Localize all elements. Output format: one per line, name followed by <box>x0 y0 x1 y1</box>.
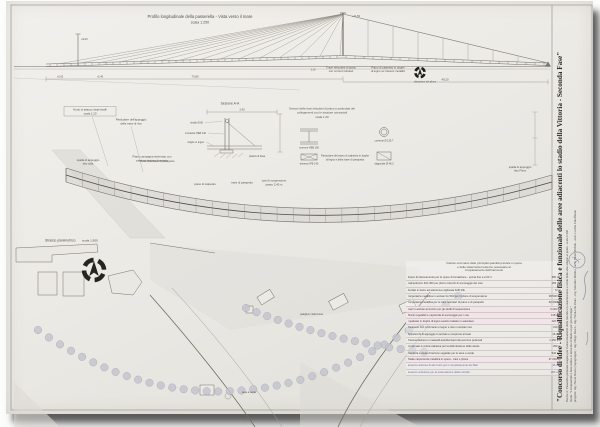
tree-icon <box>101 364 109 372</box>
symbol-caption: ubicazione del pilone <box>414 81 437 84</box>
tree-icon <box>253 308 261 316</box>
det-b-caption: corrente Ø 139,7 <box>375 140 394 143</box>
tree-icon <box>157 382 165 390</box>
det-b2-caption: diagonale Ø 48,3 <box>374 163 394 166</box>
row-description: Fornitura e stesa di terreno vegetale pe… <box>408 351 474 356</box>
dim-span-right: 49,20 <box>442 77 449 81</box>
tree-icon <box>168 384 176 392</box>
tree-icon <box>368 347 376 355</box>
tree-icon <box>214 388 222 396</box>
dim-deck: +2,40 <box>97 76 104 79</box>
tree-icon <box>191 387 199 395</box>
tree-icon <box>385 344 393 352</box>
table-header-line: completamento dell'intervento <box>408 269 560 273</box>
table-row: Essenze arbustive per la sistemazione de… <box>406 370 562 376</box>
det-a-caption: corrente HEB 160 <box>299 147 319 150</box>
tree-icon <box>261 384 269 392</box>
table-body: Scavo di sbancamento per le opere di fon… <box>406 275 562 376</box>
center-title-3: scala 1:20 <box>315 115 329 119</box>
det-a2-caption: traverso IPE 140 <box>300 163 319 166</box>
tree-icon <box>307 326 315 334</box>
row-description: Acciaio in barre ad aderenza migliorata … <box>408 288 465 293</box>
tree-icon <box>78 353 86 361</box>
tree-icon <box>320 368 328 376</box>
section-label: Sezione A-A <box>221 102 240 106</box>
tree-icon <box>263 312 271 320</box>
row-description: Parapetto con corrimano in legno e rete … <box>408 325 473 330</box>
tree-icon <box>242 304 250 312</box>
detail-box1-line2: scala 1:20 <box>84 112 97 116</box>
tree-icon <box>329 332 337 340</box>
tree-icon <box>273 382 281 390</box>
dim-zero: +0,00 <box>57 76 64 79</box>
row-description: Essenze arbustive per la sistemazione de… <box>408 370 470 375</box>
tree-icon <box>351 337 359 345</box>
title-block: "Concorso di Idee - Riqualificazione fis… <box>553 6 593 411</box>
tree-icon <box>112 368 120 376</box>
scale-note: 1:10 <box>311 69 316 72</box>
row-description: Calcestruzzo Rck 300 per plinti e blocch… <box>408 281 483 286</box>
elevation-labels: Profilo longitudinale della passerella -… <box>57 14 449 84</box>
row-description: Cordonate in pietra calcarea per la deli… <box>408 344 480 349</box>
tree-icon <box>332 364 340 372</box>
siteplan-title: Stralcio planimetrico <box>45 239 76 243</box>
tree-icon <box>180 385 188 393</box>
row-description: Carpenteria metallica per le travi retic… <box>408 300 485 305</box>
leader-label-1: strallo Ø 60 <box>190 121 203 124</box>
tree-icon <box>45 334 53 342</box>
row-description: Totale carpenteria metallica in opera - … <box>408 357 469 362</box>
caption-low-1: Particolare del piano di calpestio in do… <box>321 154 370 158</box>
compass-icon <box>81 257 107 283</box>
plan-label-right-2: lato Fiera <box>514 169 526 173</box>
section-dim: 2,40 <box>239 107 245 111</box>
tree-icon <box>318 329 326 337</box>
north-stamp-icon <box>414 67 426 79</box>
tree-icon <box>374 342 382 350</box>
tree-icon <box>356 353 364 361</box>
deck-label-2: di legno su traversi metallici <box>371 69 406 73</box>
row-description: Impalcato in doghe di legno esotico trat… <box>408 319 474 324</box>
plan-label-cables-2: passo 2,40 m <box>266 183 283 187</box>
plan-label-deck: piano di calpestio <box>194 182 216 186</box>
row-description: Tiranti regolabili e capicorda di ancora… <box>408 313 470 318</box>
tree-rows <box>34 292 462 395</box>
row-description: Apparecchi di appoggio in acciaio e neop… <box>408 332 472 337</box>
tree-icon <box>344 359 352 367</box>
row-description: Scavo di sbancamento per le opere di fon… <box>408 275 493 280</box>
title-block-text: "Concorso di Idee - Riqualificazione fis… <box>553 6 593 410</box>
tree-icon <box>308 372 316 380</box>
tree-icon <box>285 379 293 387</box>
leader-label-4: piastra di base <box>249 155 266 158</box>
tree-icon <box>393 334 401 342</box>
tree-icon <box>89 359 97 367</box>
tree-icon <box>397 345 405 353</box>
plan-label-top: Trave reticolare di parapetto <box>140 159 175 163</box>
dim-mast: +21,50 <box>352 14 361 18</box>
tree-icon <box>146 379 154 387</box>
photo-background: Profilo longitudinale della passerella -… <box>0 0 600 427</box>
tree-icon <box>274 316 282 324</box>
dim-span-left: 73,80 <box>192 74 199 78</box>
tree-icon <box>56 341 64 349</box>
tree-icon <box>340 335 348 343</box>
green-area-label: area a verde <box>242 391 257 394</box>
tree-icon <box>123 372 131 380</box>
row-description: Pavimentazione in masselli autobloccanti… <box>408 338 483 343</box>
pavilions-label: padiglioni della Fiera <box>300 313 324 316</box>
siteplan-scale: scala 1:500 <box>82 239 98 243</box>
table-header: Calcolo sommario delle principali quanti… <box>406 261 562 275</box>
tree-icon <box>297 376 305 384</box>
elevation-title: Profilo longitudinale della passerella -… <box>148 14 254 19</box>
detail-box2-line2: della trave di riva <box>120 122 142 126</box>
leader-label-2: montante HEB 140 <box>185 132 207 135</box>
leader-label-3: doghe in legno <box>188 141 205 144</box>
quantities-table: Calcolo sommario delle principali quanti… <box>406 261 562 376</box>
dim-small-mast: +9,00 <box>81 37 88 41</box>
plan-label-parapet: trave di parapetto <box>231 181 253 185</box>
tree-icon <box>67 347 75 355</box>
elevation-cables <box>50 14 544 66</box>
titleblock-progetto-line: progetto: ing. Flavio Bosco (capogruppo)… <box>573 10 577 402</box>
tree-icon <box>203 387 211 395</box>
plan-label-left-2: lato città <box>83 162 94 166</box>
competition-title: "Concorso di Idee - Riqualificazione fis… <box>556 10 565 402</box>
tree-icon <box>34 326 42 334</box>
row-description: Cavi in acciaio armonico per gli stralli… <box>408 307 471 312</box>
tree-icon <box>362 340 370 348</box>
tree-icon <box>296 323 304 331</box>
center-title-2: collegamenti con le strutture orizzontal… <box>297 111 347 115</box>
detail-labels: Nodo di attacco degli stralli scala 1:20… <box>73 102 394 166</box>
elevation-scale: scala 1:250 <box>191 21 209 25</box>
truss-label-2: con correnti tubolari <box>329 69 354 73</box>
tree-icon <box>226 387 234 395</box>
tree-icon <box>134 376 142 384</box>
tree-icon <box>285 320 293 328</box>
row-description: Carpenteria metallica in acciaio Fe 510 … <box>408 294 488 299</box>
caption-low-2: di legno e della trave di parapetto <box>326 158 365 162</box>
row-description: Essenze arboree di alto fusto per il com… <box>408 363 479 368</box>
